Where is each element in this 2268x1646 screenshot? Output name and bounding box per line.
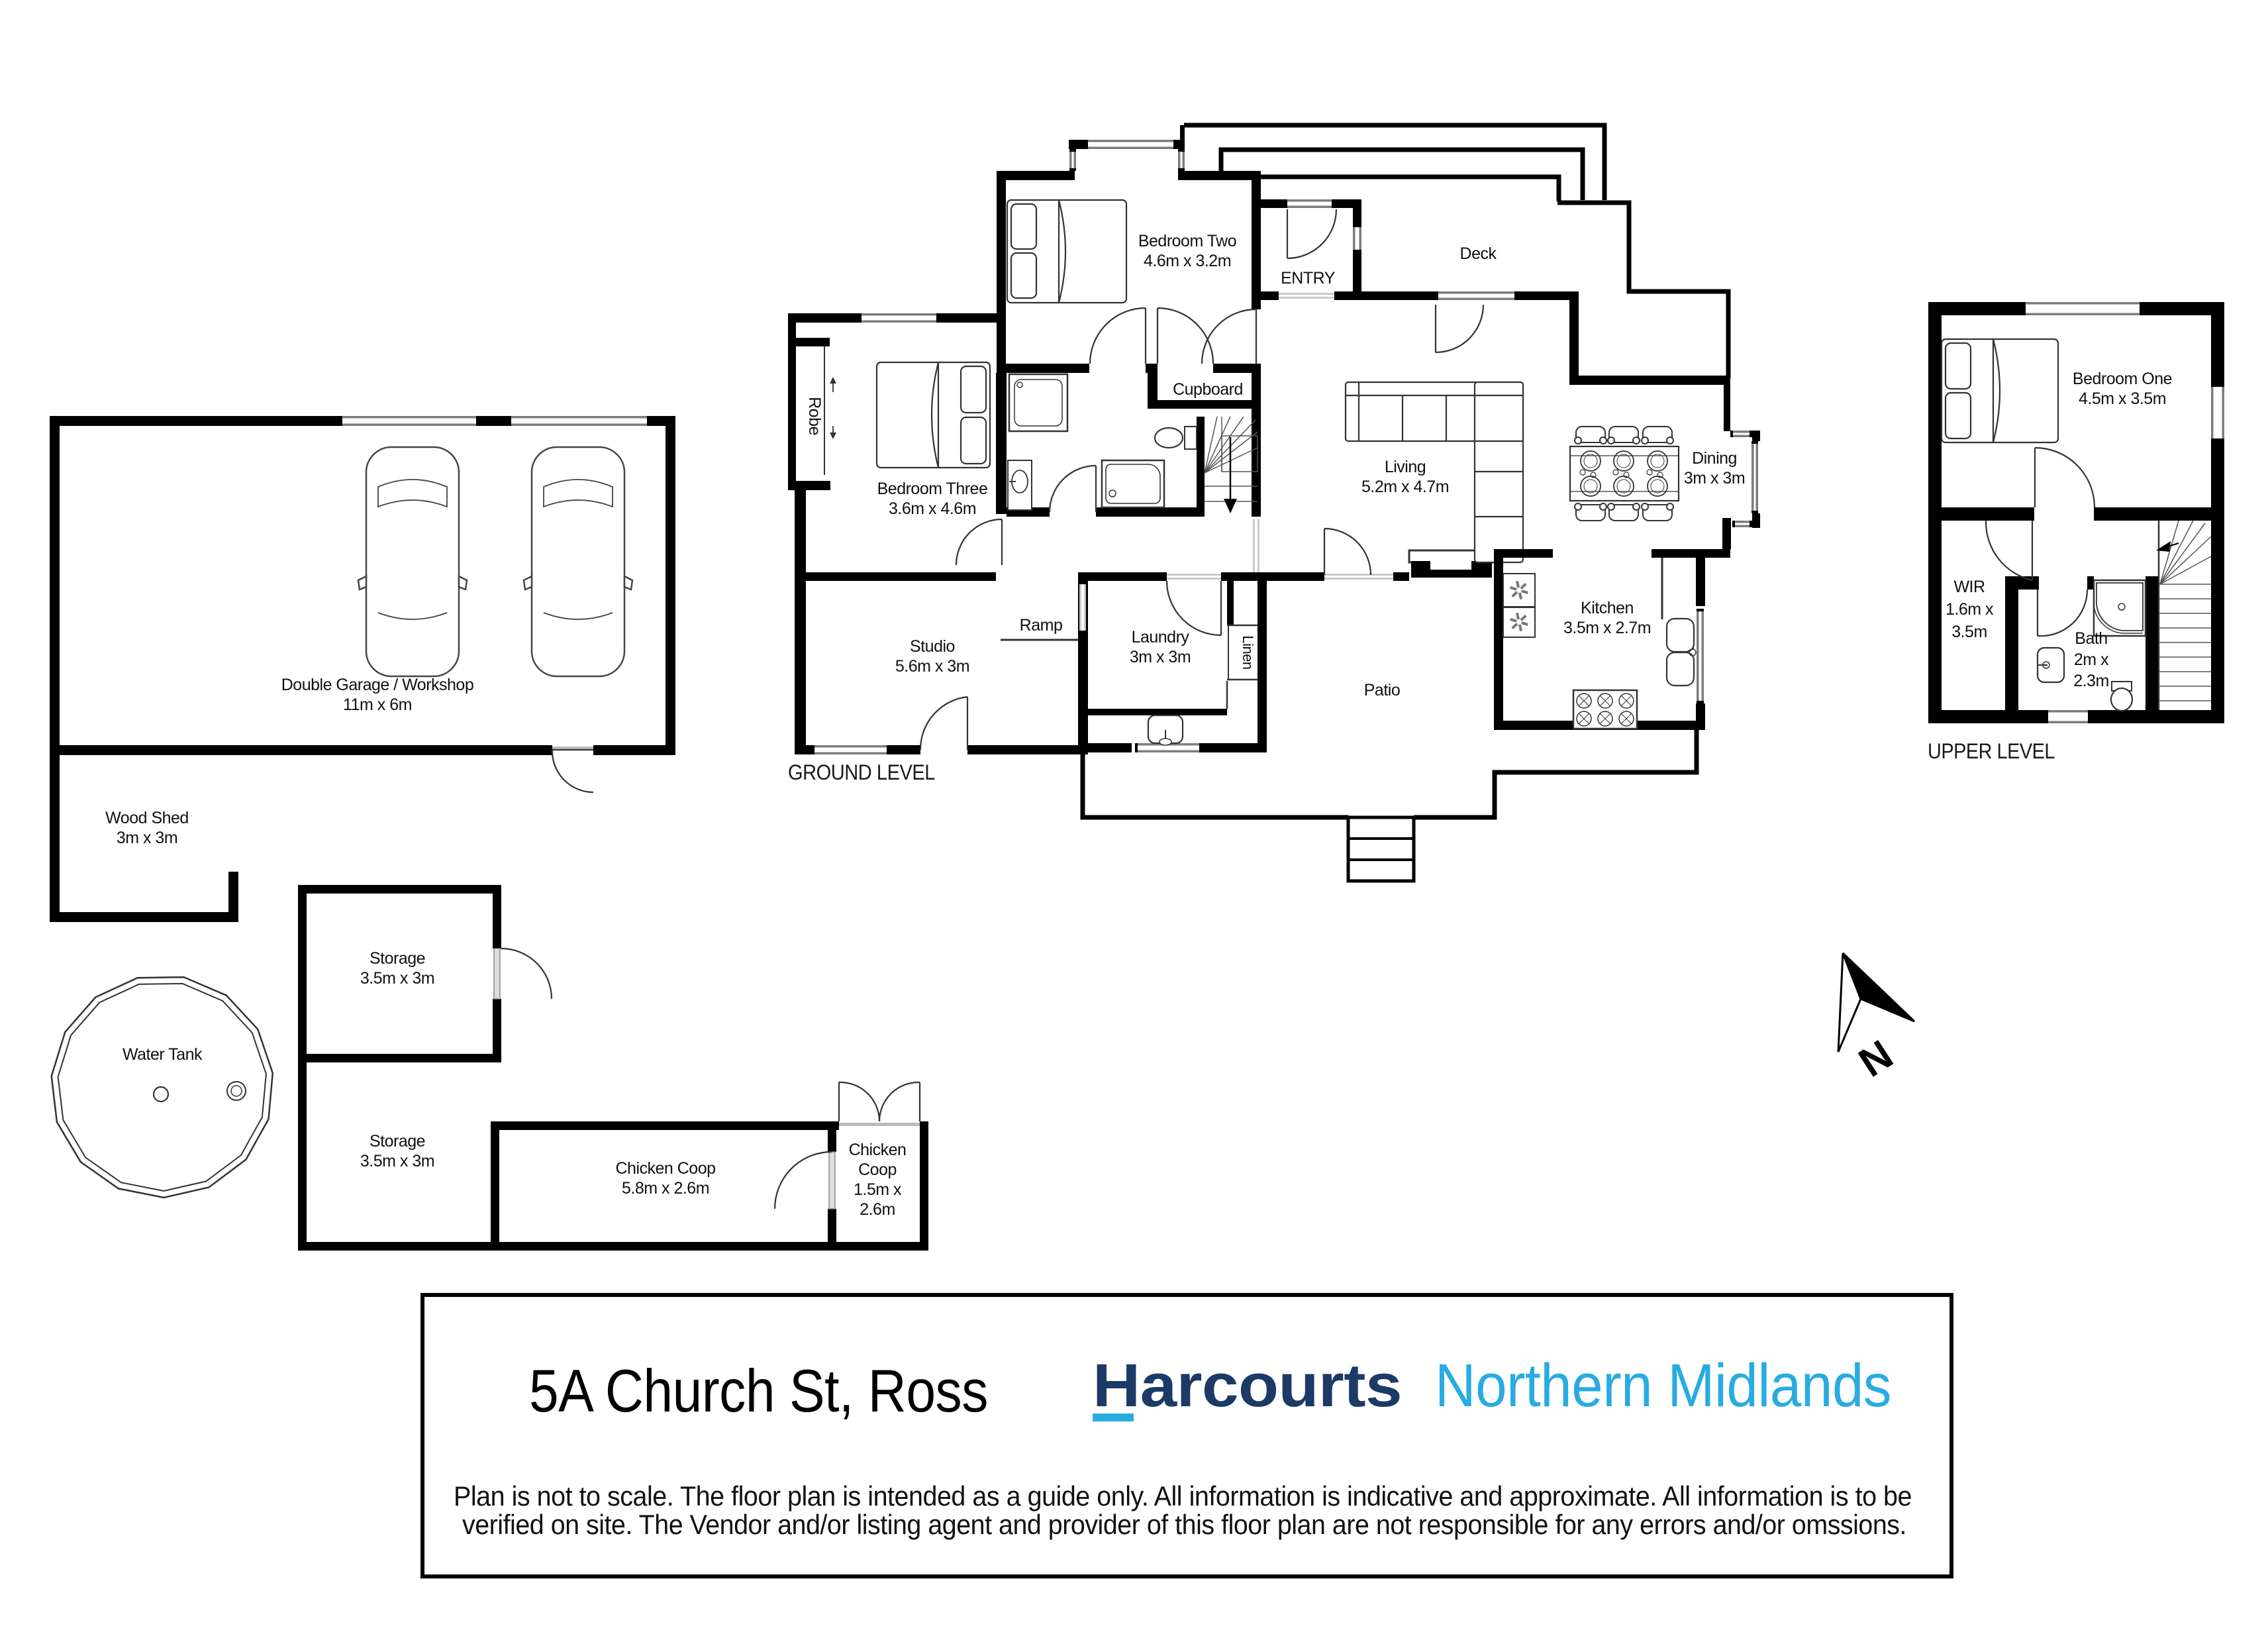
svg-text:3.5m: 3.5m: [1951, 623, 1987, 641]
svg-text:11m x 6m: 11m x 6m: [343, 695, 412, 714]
svg-text:5.6m x 3m: 5.6m x 3m: [895, 657, 969, 676]
svg-text:verified on site. The Vendor a: verified on site. The Vendor and/or list…: [462, 1509, 1906, 1540]
svg-text:Bath: Bath: [2075, 629, 2107, 648]
svg-text:Patio: Patio: [1364, 681, 1400, 699]
svg-text:2m x: 2m x: [2074, 650, 2109, 669]
svg-text:Double Garage / Workshop: Double Garage / Workshop: [281, 676, 473, 694]
svg-text:Chicken: Chicken: [849, 1141, 907, 1159]
svg-text:Plan is not to scale. The floo: Plan is not to scale. The floor plan is …: [454, 1480, 1912, 1512]
svg-text:Chicken Coop: Chicken Coop: [615, 1159, 715, 1178]
svg-text:Water Tank: Water Tank: [123, 1045, 203, 1064]
svg-text:Kitchen: Kitchen: [1581, 599, 1634, 617]
svg-text:2.6m: 2.6m: [860, 1200, 895, 1219]
svg-text:2.3m: 2.3m: [2073, 672, 2109, 690]
svg-text:UPPER LEVEL: UPPER LEVEL: [1928, 739, 2055, 763]
svg-text:1.5m x: 1.5m x: [854, 1180, 902, 1199]
svg-text:Wood Shed: Wood Shed: [105, 809, 189, 827]
svg-text:Bedroom One: Bedroom One: [2073, 370, 2172, 388]
svg-text:Bedroom Three: Bedroom Three: [877, 480, 988, 498]
svg-text:Robe: Robe: [805, 397, 824, 435]
svg-text:Harcourts: Harcourts: [1093, 1352, 1402, 1419]
svg-text:Bedroom Two: Bedroom Two: [1138, 232, 1236, 250]
svg-text:3.5m x 3m: 3.5m x 3m: [360, 1152, 434, 1170]
svg-text:1.6m x: 1.6m x: [1946, 600, 1994, 619]
svg-text:Cupboard: Cupboard: [1173, 380, 1243, 399]
svg-text:5.8m x 2.6m: 5.8m x 2.6m: [622, 1179, 709, 1198]
svg-text:WIR: WIR: [1953, 578, 1985, 596]
svg-text:Storage: Storage: [370, 949, 425, 968]
svg-text:Deck: Deck: [1460, 244, 1497, 263]
svg-text:5A Church St, Ross: 5A Church St, Ross: [529, 1358, 988, 1425]
svg-text:3.5m x 2.7m: 3.5m x 2.7m: [1563, 619, 1651, 637]
svg-text:3m x 3m: 3m x 3m: [117, 829, 177, 847]
svg-text:3m x 3m: 3m x 3m: [1130, 648, 1191, 666]
svg-text:Coop: Coop: [858, 1160, 897, 1179]
svg-text:5.2m x 4.7m: 5.2m x 4.7m: [1361, 478, 1449, 496]
svg-text:Storage: Storage: [370, 1132, 425, 1151]
svg-text:ENTRY: ENTRY: [1281, 269, 1336, 287]
svg-text:Dining: Dining: [1692, 449, 1737, 468]
svg-text:Ramp: Ramp: [1020, 616, 1063, 635]
svg-text:3.6m x 4.6m: 3.6m x 4.6m: [889, 499, 976, 518]
svg-text:3m x 3m: 3m x 3m: [1684, 469, 1745, 488]
svg-text:Linen: Linen: [1240, 635, 1256, 669]
svg-text:GROUND LEVEL: GROUND LEVEL: [788, 760, 935, 784]
svg-text:4.6m x 3.2m: 4.6m x 3.2m: [1144, 252, 1231, 270]
svg-text:Laundry: Laundry: [1132, 628, 1190, 646]
svg-text:Living: Living: [1385, 458, 1426, 476]
svg-text:Studio: Studio: [910, 637, 955, 656]
svg-text:Northern Midlands: Northern Midlands: [1435, 1352, 1891, 1419]
svg-text:4.5m x 3.5m: 4.5m x 3.5m: [2079, 389, 2166, 408]
svg-text:3.5m x 3m: 3.5m x 3m: [360, 969, 434, 988]
